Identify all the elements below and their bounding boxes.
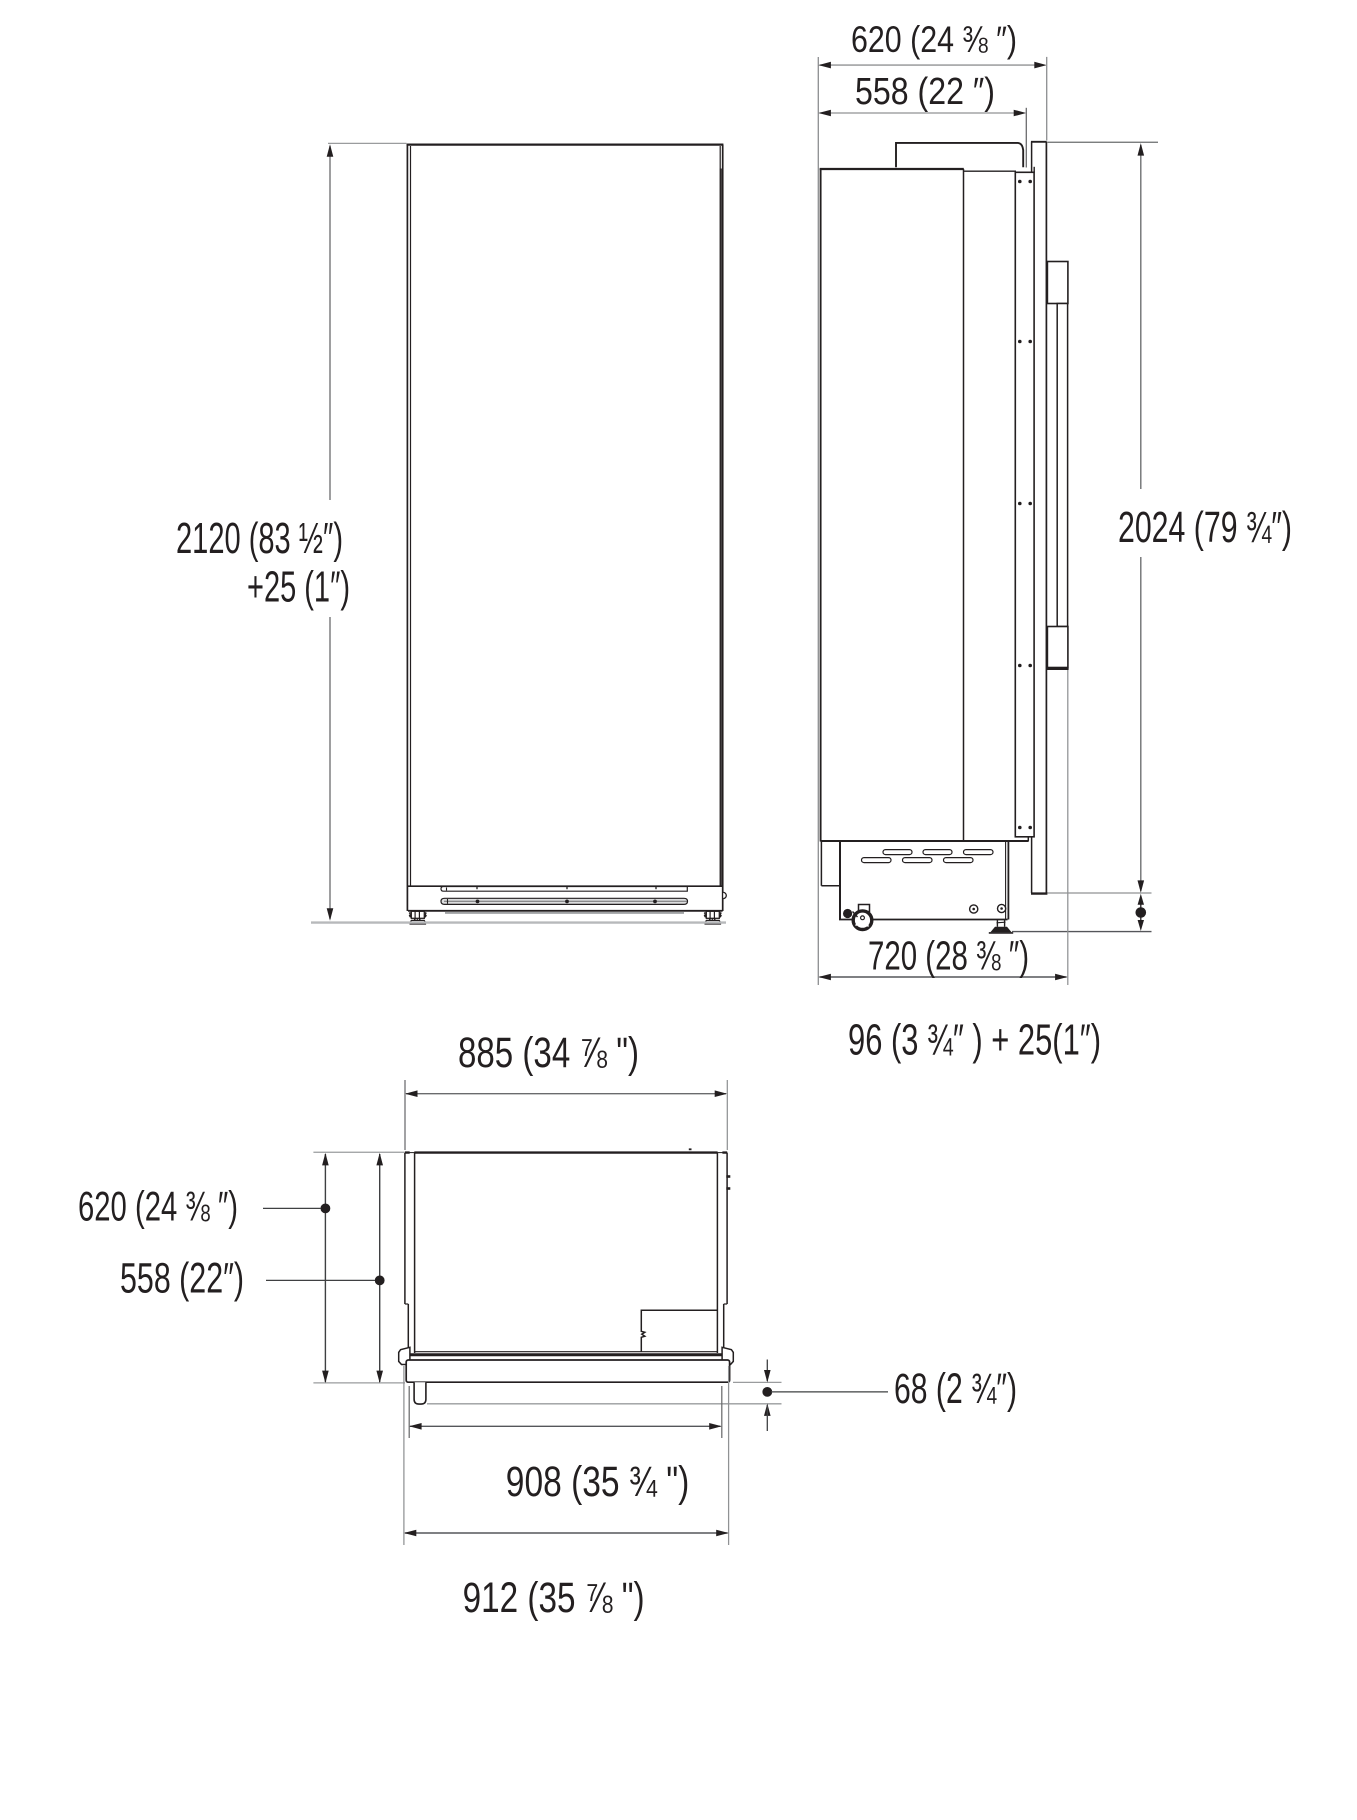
svg-text:558 (22″): 558 (22″) <box>120 1255 244 1303</box>
svg-text:96 (3 ¾″ ) + 25(1″): 96 (3 ¾″ ) + 25(1″) <box>848 1017 1101 1065</box>
svg-text:620 (24 ⅜ ″): 620 (24 ⅜ ″) <box>78 1183 238 1230</box>
svg-text:885 (34 ⅞ "): 885 (34 ⅞ ") <box>458 1029 639 1077</box>
svg-text:908 (35 ¾ "): 908 (35 ¾ ") <box>506 1458 690 1506</box>
svg-text:620 (24 ⅜ ″): 620 (24 ⅜ ″) <box>851 19 1017 60</box>
svg-text:2120 (83 ½″): 2120 (83 ½″) <box>176 515 343 563</box>
svg-text:720 (28 ⅜ ″): 720 (28 ⅜ ″) <box>868 933 1029 979</box>
svg-text:912 (35 ⅞ "): 912 (35 ⅞ ") <box>463 1574 645 1622</box>
svg-text:558 (22 ″): 558 (22 ″) <box>855 71 995 113</box>
svg-text:+25 (1″): +25 (1″) <box>247 564 350 612</box>
svg-text:68 (2 ¾″): 68 (2 ¾″) <box>894 1365 1017 1413</box>
svg-text:2024 (79 ¾″): 2024 (79 ¾″) <box>1118 504 1292 552</box>
